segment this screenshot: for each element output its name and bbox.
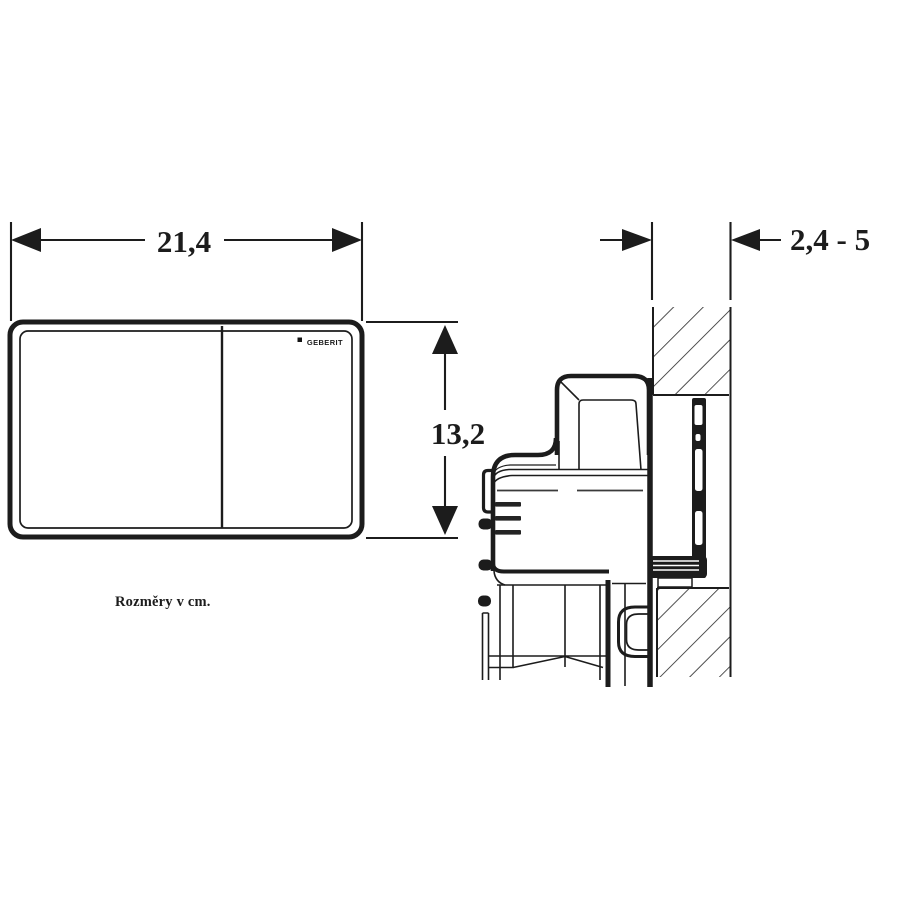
- front-view: 21,4 GEBERIT 13,2 Rozměry v cm.: [10, 222, 485, 610]
- wall-section: [653, 307, 731, 677]
- fixing-bracket: [649, 556, 707, 587]
- bend-verticals: [500, 585, 600, 680]
- flush-mechanism: [478, 376, 651, 687]
- plate-width-label: 21,4: [157, 224, 211, 259]
- technical-drawing-page: 21,4 GEBERIT 13,2 Rozměry v cm.: [0, 0, 900, 900]
- dim-arrow-left: [731, 229, 760, 251]
- units-note: Rozměry v cm.: [115, 594, 211, 610]
- dim-arrow-down: [432, 506, 458, 535]
- dim-plate-height: 13,2: [366, 322, 485, 538]
- frame-slot: [695, 511, 703, 545]
- cistern-body-fill: [493, 455, 651, 571]
- dim-arrow-right: [622, 229, 652, 251]
- bracket-body: [649, 556, 707, 578]
- bracket-step: [658, 578, 692, 587]
- vent-slot: [495, 530, 521, 535]
- plate-height-label: 13,2: [431, 416, 485, 451]
- dim-arrow-left: [11, 228, 41, 252]
- wall-thickness-label: 2,4 - 5: [790, 222, 870, 257]
- installation-diagram: 21,4 GEBERIT 13,2 Rozměry v cm.: [0, 0, 900, 900]
- frame-slot: [695, 405, 703, 425]
- brand-label: GEBERIT: [307, 338, 343, 347]
- wall-hatch-upper: [653, 307, 730, 395]
- bend-left-strip: [483, 613, 489, 680]
- dim-arrow-right: [332, 228, 362, 252]
- plate-inner-frame: [20, 331, 352, 528]
- side-view: 2,4 - 5: [478, 222, 870, 687]
- frame-slot: [696, 434, 701, 441]
- logo-square-icon: [298, 338, 303, 343]
- frame-slot: [695, 449, 703, 491]
- vent-slot: [495, 516, 521, 521]
- bend-brace: [488, 656, 610, 668]
- dim-arrow-up: [432, 325, 458, 354]
- vent-slot: [495, 502, 521, 507]
- fixing-nub: [479, 519, 493, 530]
- wall-hatch-lower: [657, 588, 730, 677]
- dim-wall-thickness: 2,4 - 5: [600, 222, 870, 300]
- flush-plate: GEBERIT: [10, 322, 362, 537]
- fixing-nub: [478, 596, 491, 607]
- dim-plate-width: 21,4: [11, 222, 362, 321]
- fixing-nub: [479, 560, 493, 571]
- mounting-frame-profile: [692, 398, 706, 578]
